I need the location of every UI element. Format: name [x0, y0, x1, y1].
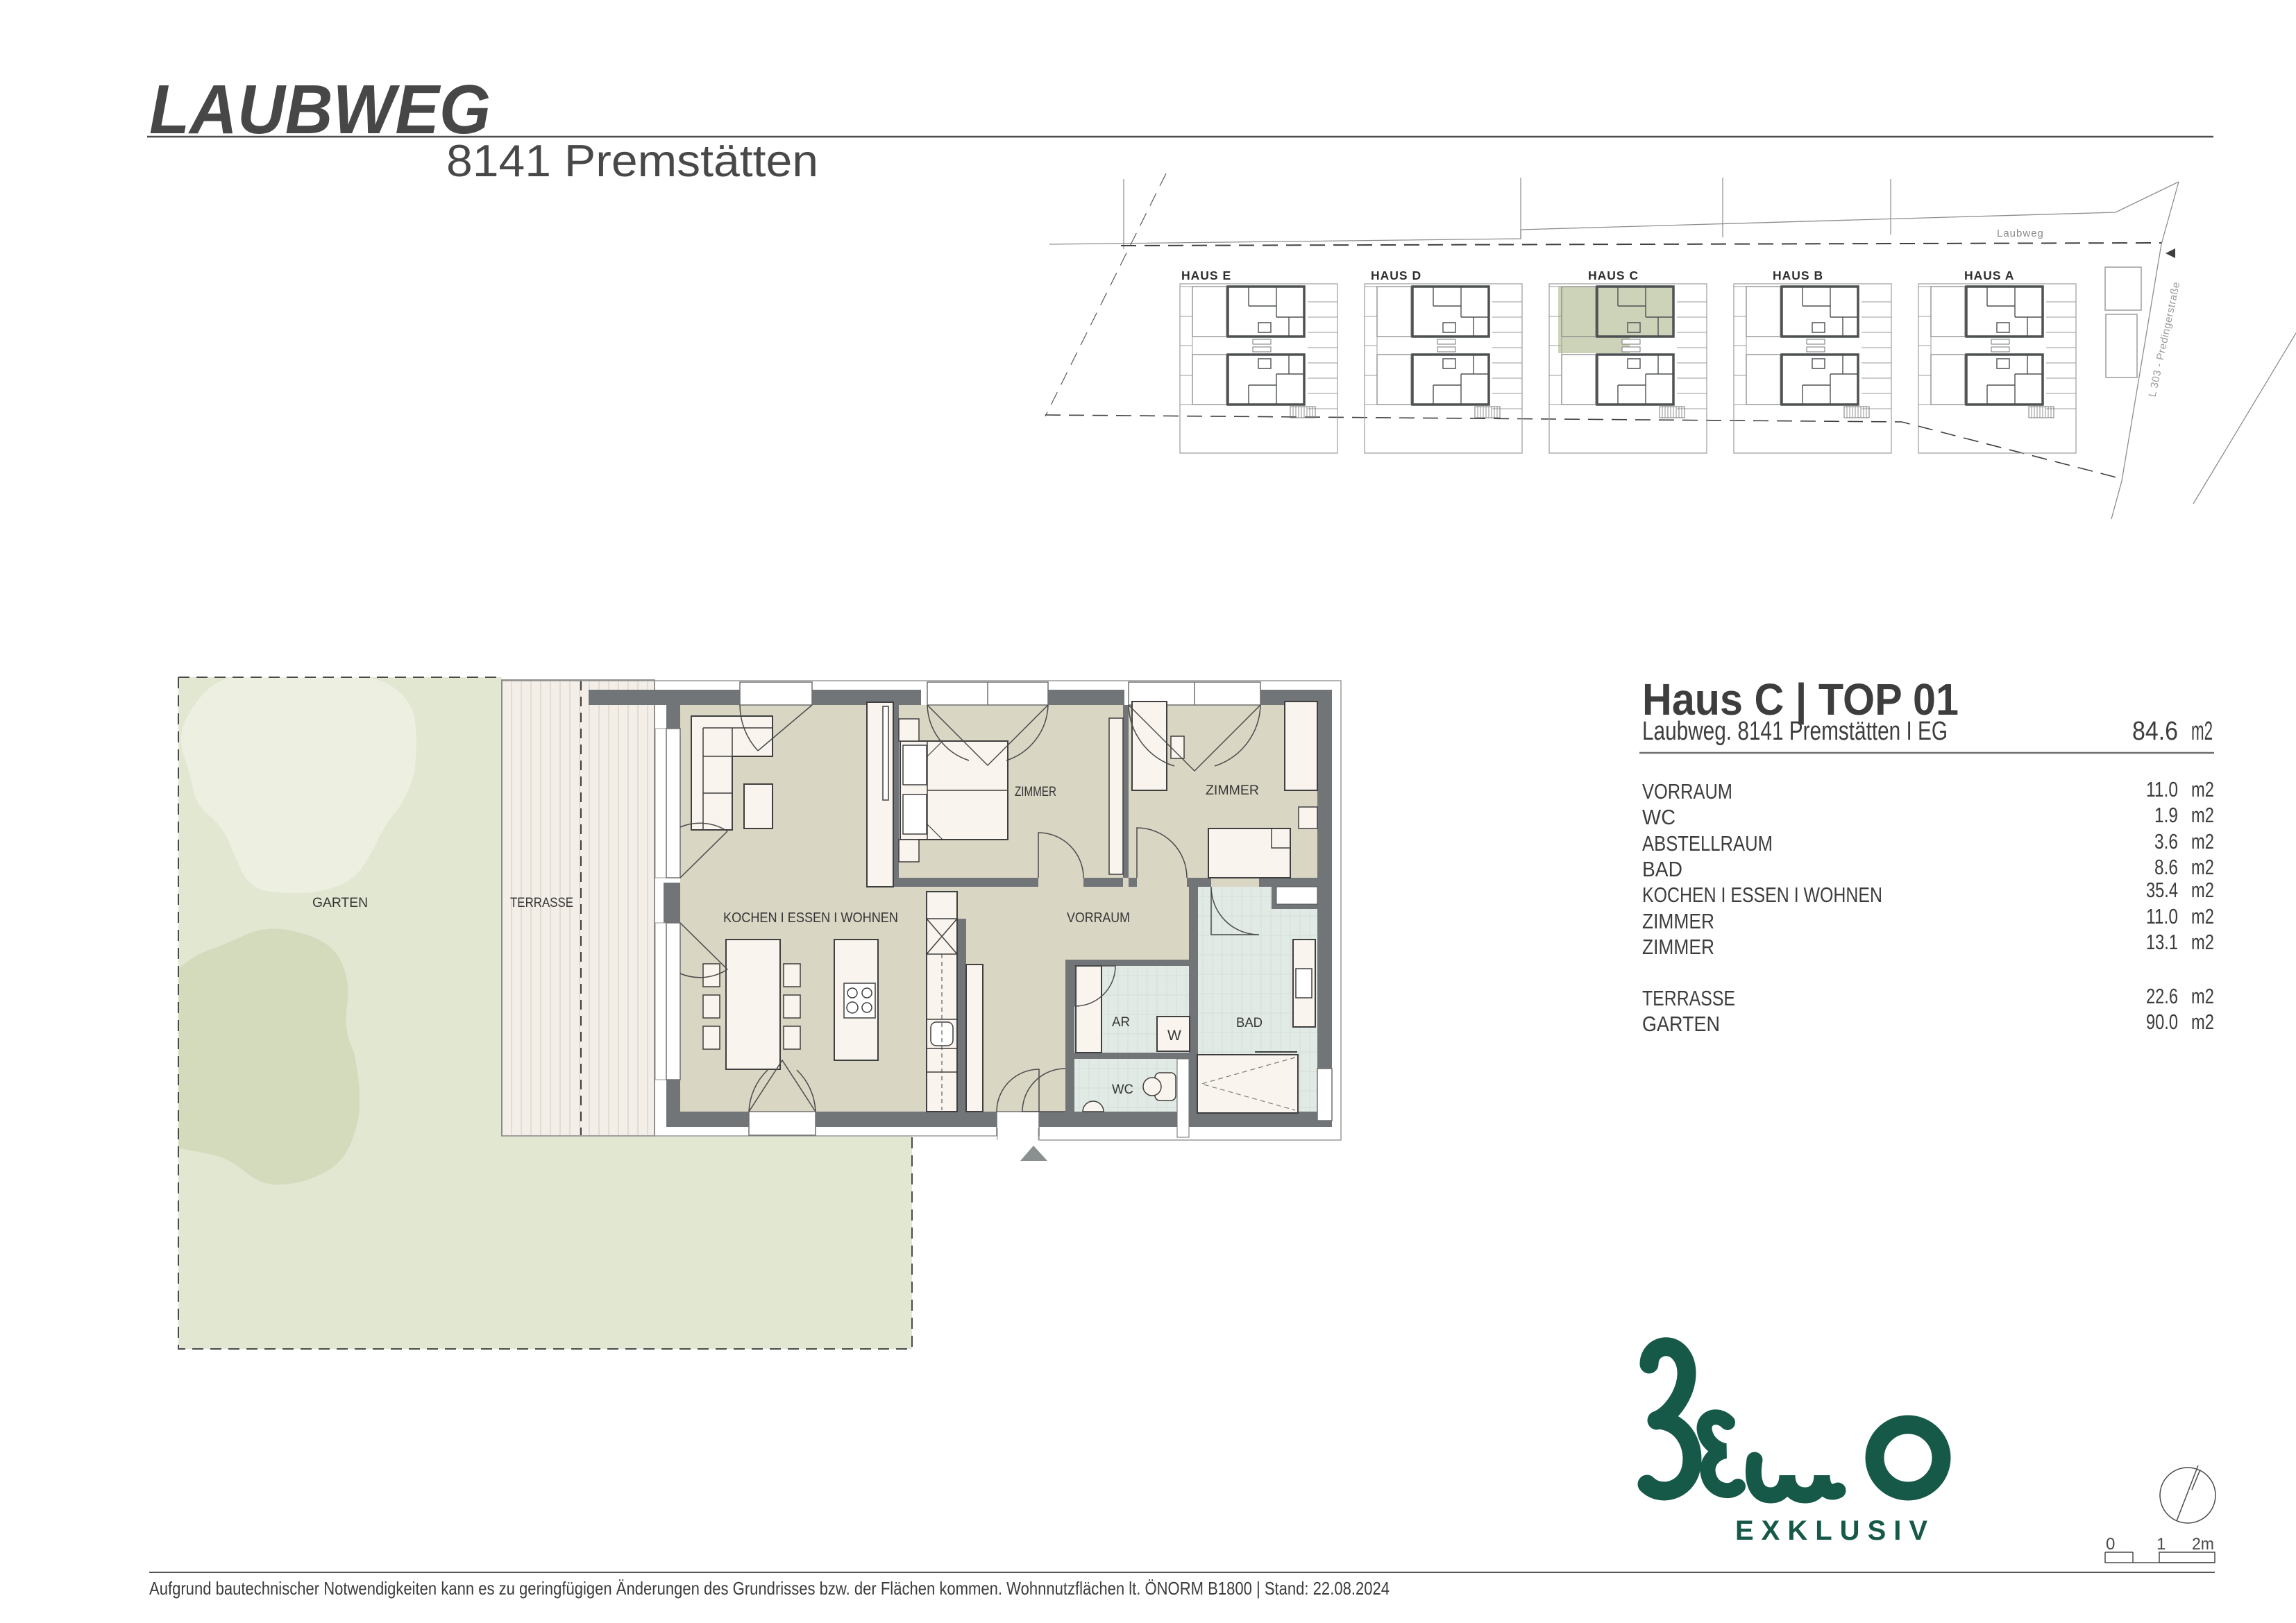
svg-text:2m: 2m	[2192, 1535, 2214, 1554]
svg-text:m2: m2	[2191, 855, 2214, 879]
svg-text:EXKLUSIV: EXKLUSIV	[1735, 1515, 1935, 1546]
svg-text:ZIMMER: ZIMMER	[1206, 783, 1259, 798]
svg-text:13.1: 13.1	[2146, 930, 2178, 954]
svg-text:HAUS B: HAUS B	[1773, 269, 1823, 282]
svg-text:GARTEN: GARTEN	[1642, 1012, 1720, 1036]
svg-text:m2: m2	[2191, 803, 2214, 827]
svg-text:1.9: 1.9	[2154, 803, 2178, 827]
svg-text:m2: m2	[2191, 878, 2214, 902]
svg-text:84.6: 84.6	[2132, 717, 2178, 746]
svg-text:8.6: 8.6	[2154, 855, 2178, 879]
svg-text:90.0: 90.0	[2146, 1010, 2178, 1034]
svg-text:m2: m2	[2191, 1010, 2214, 1034]
svg-text:ZIMMER: ZIMMER	[1642, 909, 1714, 933]
svg-text:m2: m2	[2191, 717, 2213, 746]
svg-text:ZIMMER: ZIMMER	[1015, 785, 1056, 799]
svg-text:3.6: 3.6	[2154, 829, 2178, 853]
svg-text:BAD: BAD	[1236, 1016, 1263, 1030]
svg-text:KOCHEN I ESSEN I WOHNEN: KOCHEN I ESSEN I WOHNEN	[1642, 883, 1882, 907]
svg-text:Aufgrund bautechnischer Notwen: Aufgrund bautechnischer Notwendigkeiten …	[149, 1578, 1390, 1599]
svg-text:m2: m2	[2191, 904, 2214, 928]
svg-text:TERRASSE: TERRASSE	[510, 896, 573, 910]
svg-text:m2: m2	[2191, 930, 2214, 954]
svg-text:HAUS D: HAUS D	[1371, 269, 1421, 282]
svg-text:KOCHEN I ESSEN I WOHNEN: KOCHEN I ESSEN I WOHNEN	[723, 910, 898, 926]
svg-text:m2: m2	[2191, 829, 2214, 853]
svg-text:11.0: 11.0	[2146, 777, 2178, 801]
svg-text:WC: WC	[1642, 805, 1675, 829]
svg-text:VORRAUM: VORRAUM	[1642, 779, 1732, 804]
svg-text:WC: WC	[1112, 1082, 1133, 1097]
svg-text:35.4: 35.4	[2146, 878, 2178, 902]
svg-text:Laubweg. 8141 Premstätten I EG: Laubweg. 8141 Premstätten I EG	[1642, 717, 1948, 746]
svg-text:Laubweg: Laubweg	[1997, 228, 2044, 239]
svg-text:HAUS A: HAUS A	[1964, 269, 2014, 282]
svg-text:8141 Premstätten: 8141 Premstätten	[446, 135, 818, 186]
svg-text:m2: m2	[2191, 984, 2214, 1008]
svg-text:ZIMMER: ZIMMER	[1642, 935, 1714, 959]
svg-text:TERRASSE: TERRASSE	[1642, 986, 1735, 1010]
svg-text:HAUS C: HAUS C	[1588, 269, 1639, 282]
svg-text:W: W	[1167, 1028, 1181, 1044]
svg-text:VORRAUM: VORRAUM	[1067, 910, 1130, 926]
svg-text:22.6: 22.6	[2146, 984, 2178, 1008]
svg-text:AR: AR	[1112, 1015, 1130, 1030]
svg-text:HAUS E: HAUS E	[1181, 269, 1231, 282]
svg-text:0: 0	[2106, 1535, 2115, 1554]
svg-text:1: 1	[2156, 1535, 2166, 1554]
svg-text:GARTEN: GARTEN	[312, 896, 368, 910]
svg-text:m2: m2	[2191, 777, 2214, 801]
svg-text:BAD: BAD	[1642, 857, 1682, 881]
svg-text:ABSTELLRAUM: ABSTELLRAUM	[1642, 831, 1773, 856]
svg-text:11.0: 11.0	[2146, 904, 2178, 928]
